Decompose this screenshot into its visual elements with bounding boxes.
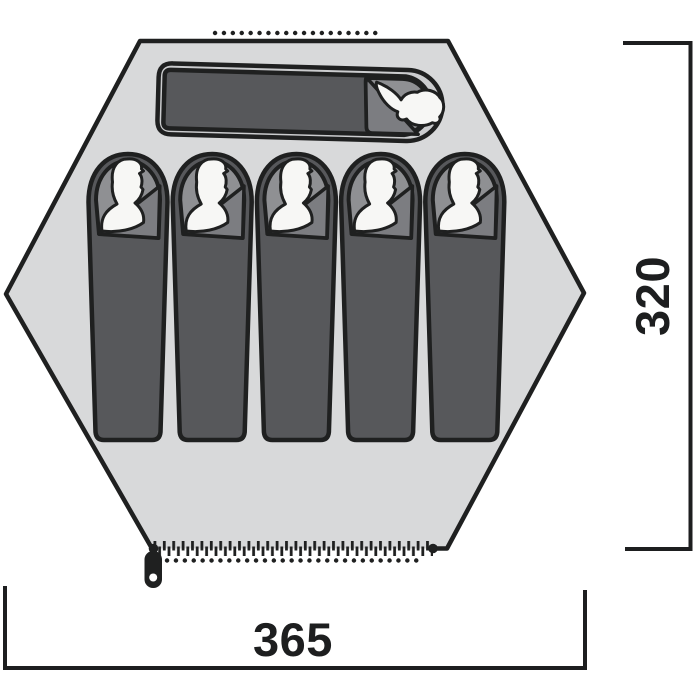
zipper-teeth <box>153 541 433 556</box>
zipper-end-stop-right <box>428 544 438 554</box>
height-dimension: 320 <box>623 43 691 549</box>
width-dimension: 365 <box>5 586 585 668</box>
width-dimension-label: 365 <box>253 613 333 666</box>
sleeping-bag-vertical <box>257 154 336 440</box>
tent-floorplan-diagram: 320 365 <box>0 0 696 696</box>
sleeping-bag-vertical <box>89 154 168 440</box>
door-zipper <box>145 541 438 588</box>
sleeping-bag-row <box>89 154 505 440</box>
height-dimension-label: 320 <box>626 256 679 336</box>
sleeping-bag-vertical <box>173 154 252 440</box>
floorplan-canvas: 320 365 <box>0 0 696 696</box>
zipper-pull <box>145 551 163 588</box>
sleeping-bag-vertical <box>341 154 420 440</box>
sleeping-bag-horizontal <box>157 63 445 142</box>
zipper-pull-hole <box>149 574 157 582</box>
sleeping-bag-vertical <box>425 154 504 440</box>
